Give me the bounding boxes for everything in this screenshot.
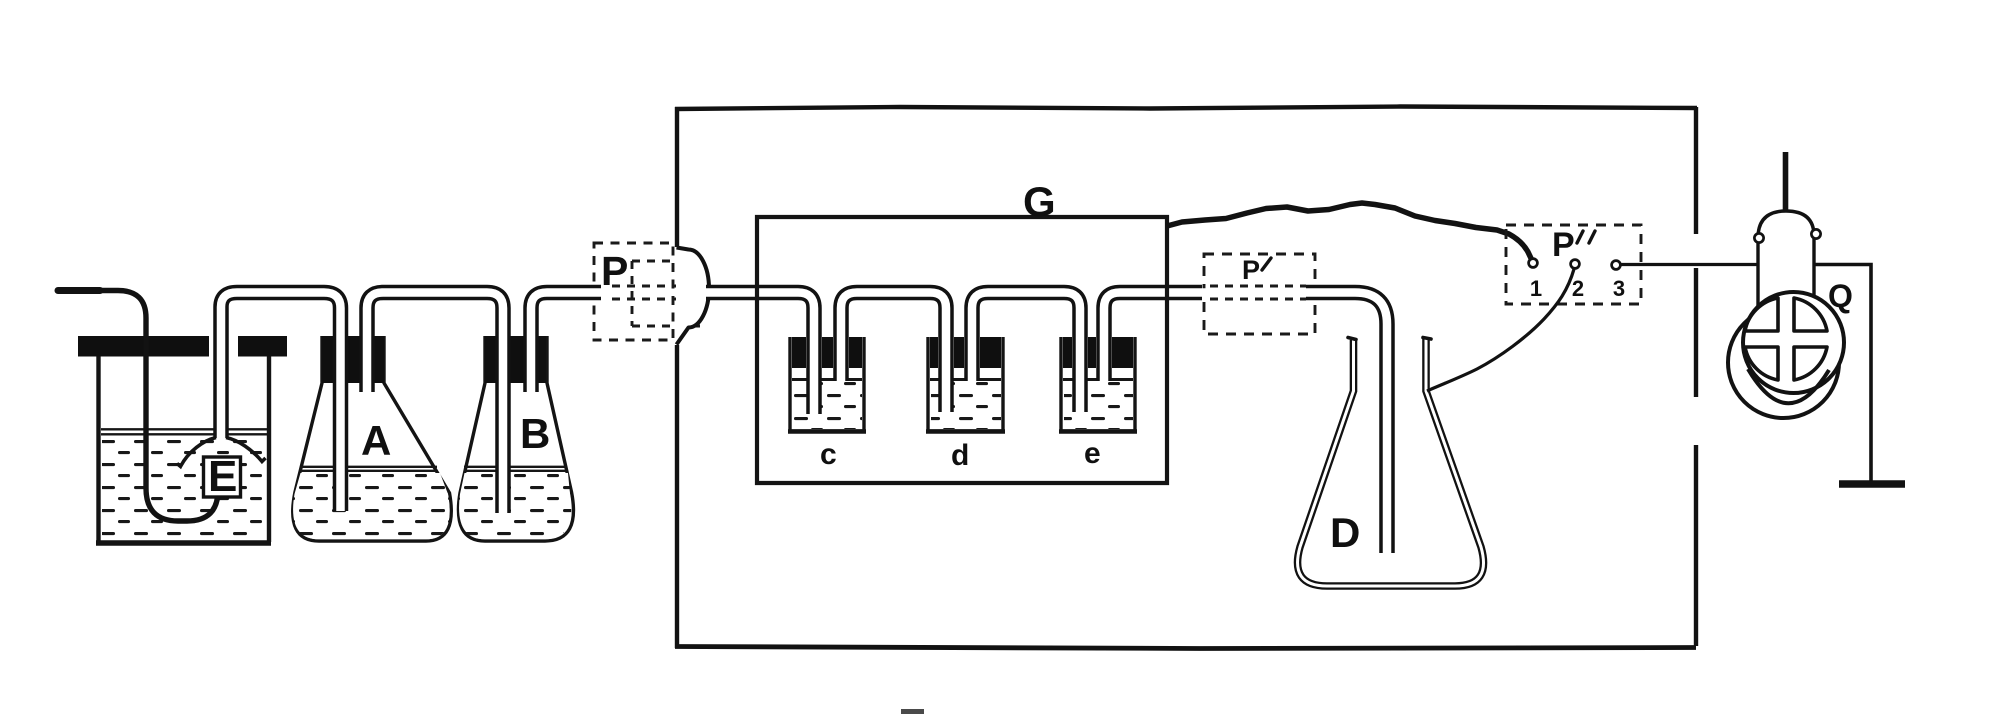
- svg-text:A: A: [361, 417, 391, 464]
- svg-text:P: P: [601, 248, 628, 294]
- svg-text:P: P: [1242, 255, 1260, 285]
- svg-text:D: D: [1330, 509, 1360, 556]
- svg-text:e: e: [1084, 437, 1101, 470]
- svg-text:E: E: [208, 452, 237, 501]
- svg-text:2: 2: [1572, 276, 1584, 301]
- svg-text:d: d: [951, 439, 969, 472]
- svg-text:Q: Q: [1828, 278, 1853, 314]
- svg-text:G: G: [1023, 178, 1056, 225]
- svg-text:1: 1: [1530, 276, 1542, 301]
- svg-text:c: c: [820, 438, 837, 471]
- svg-text:P: P: [1552, 226, 1575, 264]
- svg-text:B: B: [520, 410, 550, 457]
- svg-text:3: 3: [1613, 276, 1625, 301]
